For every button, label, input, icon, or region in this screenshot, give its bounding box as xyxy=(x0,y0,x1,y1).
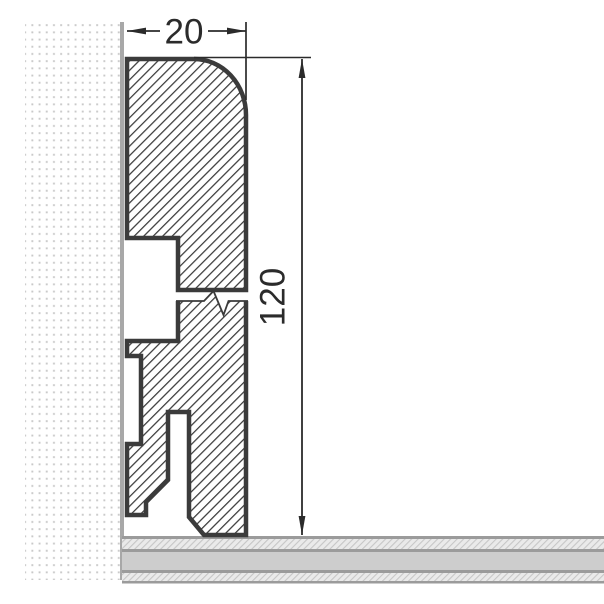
wall-section xyxy=(25,22,124,580)
skirting-profile xyxy=(127,59,248,535)
floor-core-band xyxy=(122,552,604,570)
drawing-canvas: 20 120 xyxy=(0,0,604,604)
width-arrowhead-left xyxy=(127,28,146,35)
wall-edge-line xyxy=(120,22,124,580)
width-dim-label: 20 xyxy=(165,13,204,52)
floor-top-line xyxy=(122,536,604,539)
floor-bottom-line xyxy=(122,581,604,584)
profile-upper-body xyxy=(127,59,246,290)
height-arrowhead-top xyxy=(299,59,306,78)
height-arrowhead-bottom xyxy=(299,516,306,535)
floor-divider-line xyxy=(122,549,604,552)
width-arrowhead-right xyxy=(227,28,246,35)
floor-divider-line xyxy=(122,570,604,573)
skirting-profile-drawing: 20 120 xyxy=(0,0,604,604)
height-dim-label: 120 xyxy=(254,268,293,326)
floor-hatch-band-lower xyxy=(122,573,604,581)
floor-section xyxy=(122,536,604,584)
wall-stipple-surface xyxy=(25,23,120,580)
floor-hatch-band-upper xyxy=(122,539,604,549)
